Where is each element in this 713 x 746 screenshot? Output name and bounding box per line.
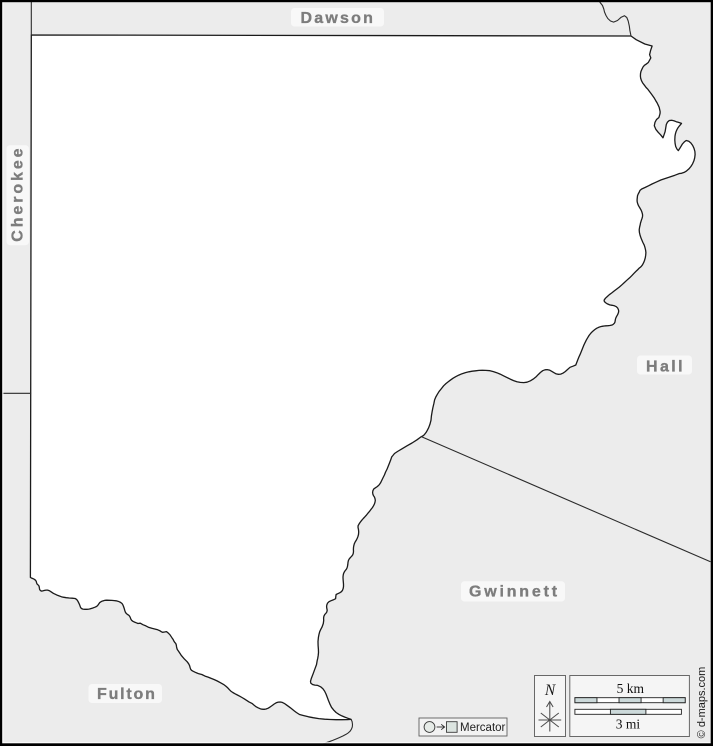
svg-text:Cherokee: Cherokee xyxy=(9,146,26,242)
svg-text:© d-maps.com: © d-maps.com xyxy=(696,667,708,739)
svg-text:5 km: 5 km xyxy=(617,681,645,696)
svg-text:Mercator: Mercator xyxy=(460,722,506,734)
svg-text:Hall: Hall xyxy=(646,359,685,376)
svg-text:3 mi: 3 mi xyxy=(616,717,641,732)
svg-text:Dawson: Dawson xyxy=(301,10,376,27)
svg-text:Gwinnett: Gwinnett xyxy=(469,583,560,600)
svg-text:Fulton: Fulton xyxy=(97,686,157,703)
svg-text:N: N xyxy=(544,682,557,699)
